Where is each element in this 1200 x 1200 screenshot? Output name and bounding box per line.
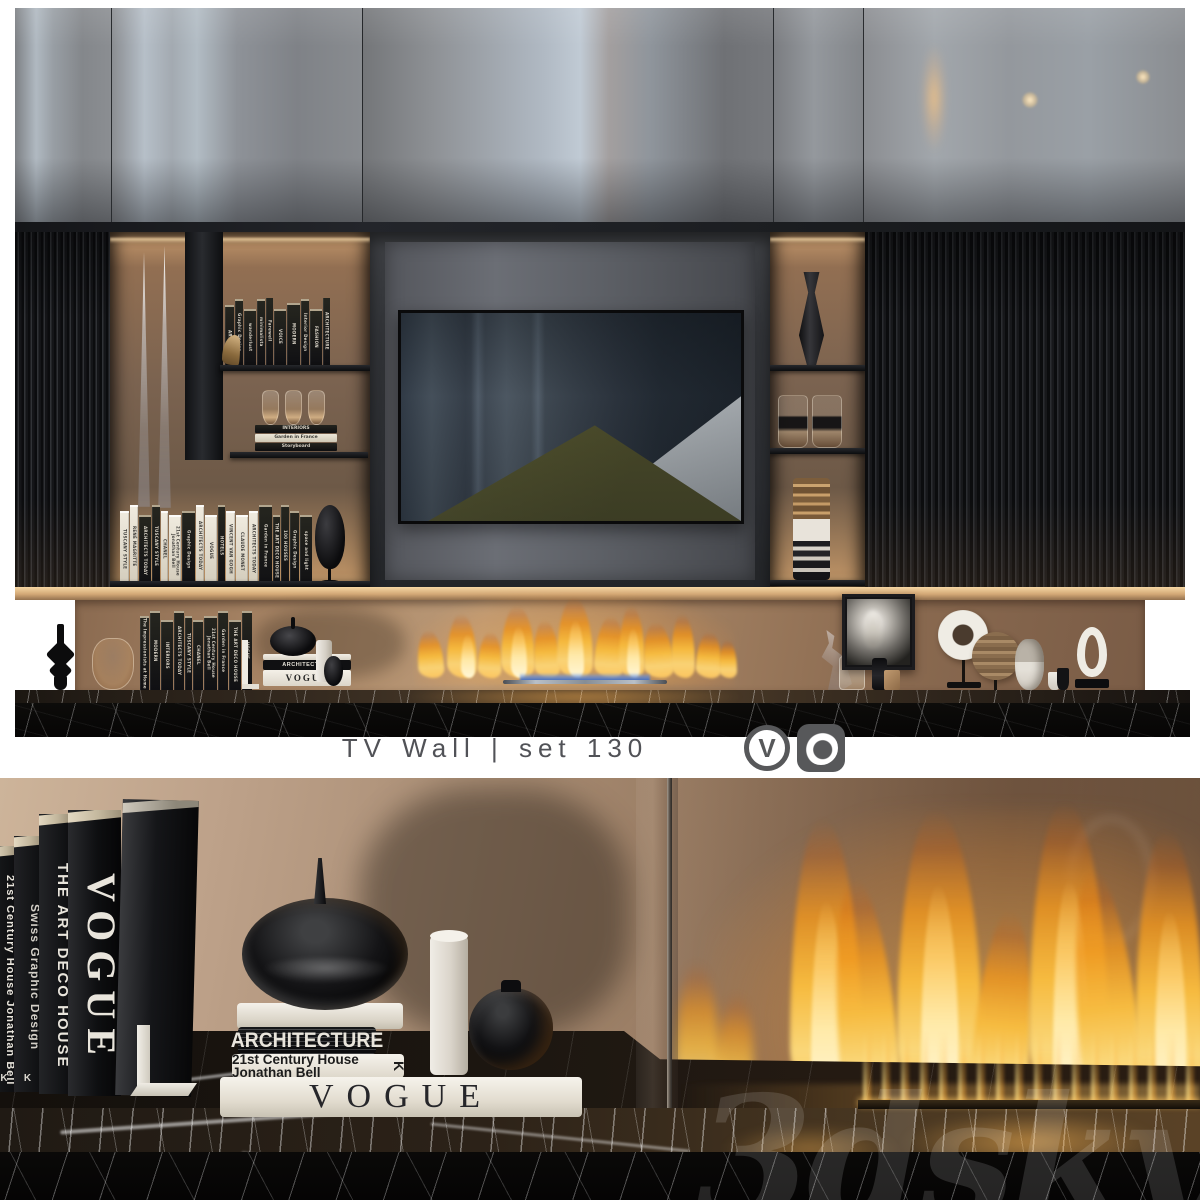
book-spine: Garden in France (259, 505, 272, 587)
vase-knob (314, 858, 326, 904)
tv-wall-main-render: ARTGraphic DesignwanderlustminimalistaFa… (15, 8, 1185, 737)
fluted-panel-right (865, 232, 1185, 587)
black-ufo-vase (270, 626, 316, 656)
book-spine: MODERN (150, 611, 160, 690)
burner-tray (503, 680, 667, 684)
book-spine-text: THE ART DECO HOUSE (39, 814, 70, 1094)
hurricane-candle-holder (812, 395, 842, 448)
publisher-badge: K (392, 1061, 406, 1071)
shelf-board (220, 365, 370, 371)
book-spine: ARCHITECTURE (323, 298, 330, 365)
black-cup (1057, 668, 1069, 690)
shelf-board (770, 448, 865, 454)
book-spine: VOICE (274, 309, 286, 365)
watermark: 3dsky (695, 1074, 1200, 1200)
book-spine-text: Swiss Graphic Design (14, 836, 41, 1092)
book-standing-blank (115, 799, 199, 1097)
upper-shelf-books: ARTGraphic DesignwanderlustminimalistaFa… (225, 298, 367, 365)
book-spine: ARCHITECTS TODAY (174, 611, 184, 690)
book-spine: THE ART DECO HOUSE (229, 620, 241, 690)
book-spine: ARCHITECTS TODAY (139, 515, 151, 587)
book-spine: Garden in France (255, 434, 337, 442)
book-spine: MODERN (287, 303, 300, 365)
book-spine: ARCHITECTS TODAY (249, 511, 258, 587)
shelf-divider (185, 232, 223, 460)
black-candlestick (48, 624, 73, 690)
base-standing-books: The Impressionists at HomeMODERNINTERIOR… (140, 608, 258, 690)
light-flare (921, 43, 947, 153)
product-title: TV Wall | set 130 (330, 730, 660, 766)
book-spine: Farewell (266, 298, 273, 365)
cabinet-bottom-edge (15, 222, 1185, 232)
glass-spire-decor (137, 252, 151, 507)
vray-logo-icon: V (744, 725, 790, 771)
glass-metal-edge (667, 778, 672, 1108)
small-black-vase (324, 656, 343, 686)
lower-shelf-books: TUSCANY STYLERENÉ MAGRITTEARCHITECTS TOD… (120, 503, 320, 587)
tv-screen (398, 310, 744, 524)
left-shelf-column: ARTGraphic DesignwanderlustminimalistaFa… (110, 232, 370, 587)
right-shelf-column (770, 232, 865, 587)
gray-stone-vase (1015, 639, 1044, 690)
cabinet-door (15, 8, 111, 222)
book-spine: Garden in France (218, 611, 228, 690)
book-spine-text: VOGUE (68, 810, 121, 1096)
corona-renderer-logo-icon (797, 724, 845, 772)
portrait-photo (847, 599, 910, 665)
glass-spire-decor (157, 246, 172, 508)
book-spine-text: 21st Century House Jonathan Bell (232, 1053, 384, 1080)
white-loop-sculpture (1075, 627, 1111, 690)
cabinet-door (773, 8, 863, 222)
book-spine: INTERIORS (161, 620, 173, 690)
glass-bowl (92, 638, 134, 690)
book-spine: wanderlust (244, 309, 256, 365)
ceiling-light-reflection (1022, 92, 1038, 108)
shelf-floor (770, 580, 865, 586)
book-spine: 21st Century House Jonathan Bell (169, 515, 181, 587)
white-bookend (242, 640, 260, 690)
ceiling-light-reflection (1136, 70, 1150, 84)
wood-cube-decor (884, 670, 900, 690)
cabinet-door (111, 8, 362, 222)
book-spine: TUSCANY STYLE (120, 511, 129, 587)
tall-black-vase (795, 272, 828, 365)
book-spine: VINCENT VAN GOGH (226, 511, 235, 587)
book-standing: VOGUE (68, 810, 121, 1096)
base-console: The Impressionists at HomeMODERNINTERIOR… (15, 600, 1185, 690)
book-standing: THE ART DECO HOUSE (39, 814, 70, 1094)
book-spine: THE ART DECO HOUSE (273, 515, 280, 587)
glass-divider-panel (636, 778, 678, 1108)
background-wall (1145, 600, 1185, 690)
book-spine: Storyboard (255, 443, 337, 451)
striped-cylinder-vessel (793, 478, 830, 580)
publisher-badge: K (14, 1074, 41, 1084)
book-spine: 100 HOUSES (281, 505, 289, 587)
book-spine: RENÉ MAGRITTE (130, 505, 138, 587)
marble-cylinder-vessel (430, 935, 468, 1075)
glass-goblet (285, 390, 302, 425)
screenshot-canvas: ARTGraphic DesignwanderlustminimalistaFa… (0, 0, 1200, 1200)
book-spine: INTERIORS (255, 425, 337, 433)
book-spine: FASHION (310, 309, 322, 365)
egg-sculpture (315, 505, 345, 569)
stacked-books-under-goblets: INTERIORSGarden in FranceStoryboard (255, 425, 337, 451)
book-spine: TUSCANY STYLE (152, 505, 160, 587)
shelf-led-light (770, 238, 865, 243)
book-spine: Interior Design (301, 299, 309, 365)
book-spine: CHANEL (161, 511, 168, 587)
hurricane-candle-holder (778, 395, 808, 448)
book-standing: Swiss Graphic Design K (14, 836, 41, 1092)
glass-goblet (308, 390, 325, 425)
bio-fireplace (405, 594, 745, 686)
stacked-book-spine: ARCHITECTURE (238, 1027, 376, 1054)
book-spine: HOTELS (218, 505, 225, 587)
cabinet-door (362, 8, 773, 222)
book-spine: 21st Century House Jonathan Bell (204, 616, 217, 690)
book-spine: TUSCANY STYLE (185, 616, 192, 690)
glass-goblet (262, 390, 279, 425)
middle-shelving-band: ARTGraphic DesignwanderlustminimalistaFa… (15, 232, 1185, 600)
small-black-vase (469, 988, 553, 1070)
tv-recess-panel (370, 232, 770, 600)
closeup-detail-render: 21st Century House Jonathan Bell K Swiss… (0, 778, 1200, 1200)
book-spine: minimalista (257, 299, 265, 365)
fluted-panel-left (15, 232, 110, 587)
shelf-led-light (110, 238, 370, 243)
vase-highlight (256, 958, 396, 984)
shelf-board (770, 365, 865, 371)
cabinet-door (863, 8, 1185, 222)
upper-cabinets (15, 8, 1185, 222)
shelf-board (230, 452, 368, 458)
book-spine: Graphic Design (290, 511, 299, 587)
book-spine: Graphic Design (182, 511, 195, 587)
screen-dim-overlay (401, 313, 741, 521)
book-spine: ARCHITECTS TODAY (196, 505, 204, 587)
stacked-book-spine: 21st Century House Jonathan Bell K (232, 1054, 404, 1078)
book-spine: VOGUE (205, 515, 217, 587)
stacked-book-spine: VOGUE (220, 1077, 582, 1117)
book-spine: CHANEL (193, 620, 203, 690)
black-ufo-vase (242, 898, 408, 1010)
book-spine: CLAUDE MONET (236, 515, 248, 587)
book-spine: space and light (300, 515, 312, 587)
book-spine: The Impressionists at Home (140, 616, 149, 690)
